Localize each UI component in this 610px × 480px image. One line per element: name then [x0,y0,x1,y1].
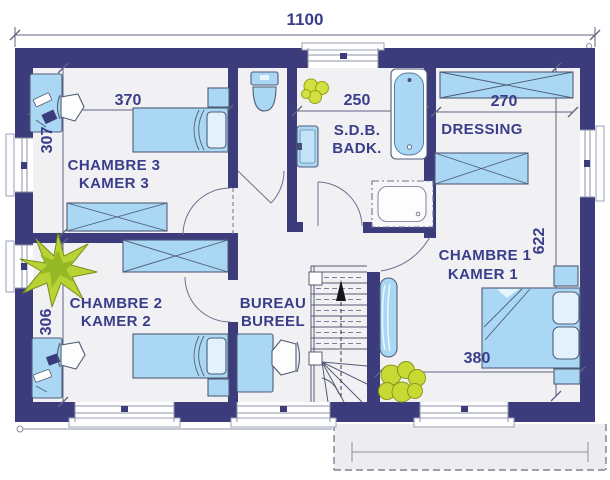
bench-chambre1 [554,369,580,384]
nightstand-chambre3 [208,88,229,107]
floor-plan: 1100 370 307 306 250 270 622 380 CHAMBRE… [0,0,610,480]
desk-bureau [237,334,273,392]
bed-chambre3 [133,108,228,152]
room-label-bathroom-fr: S.D.B. [334,122,381,139]
dim-chambre2-depth: 306 [38,309,55,336]
room-label-chambre1-fr: CHAMBRE 1 [439,247,532,264]
dim-bathroom-width: 250 [344,92,371,109]
window-bottom-chambre1 [414,402,514,427]
window-top [302,43,384,68]
room-label-bathroom-nl: BADK. [332,140,382,157]
floor-plan-drawing: 1100 370 307 306 250 270 622 380 CHAMBRE… [0,0,610,480]
room-label-chambre1-nl: KAMER 1 [448,266,518,283]
wardrobe-chambre2 [123,240,228,272]
room-label-chambre3-nl: KAMER 3 [79,175,149,192]
wardrobe-dressing-mid [435,153,528,184]
window-bottom-bureau [231,402,336,427]
reference-marker-top-right [587,44,592,49]
dim-east-wing-depth: 622 [531,228,548,255]
room-label-dressing: DRESSING [441,121,523,138]
shower [372,181,433,227]
window-left-chambre3 [6,134,33,196]
dim-chambre1-width: 380 [464,350,491,367]
window-left-chambre2 [6,241,33,292]
wardrobe-chambre3 [67,203,167,231]
desk-chambre3 [30,74,62,132]
dim-chambre3-depth: 307 [39,127,56,154]
dim-chambre3-width: 370 [115,92,142,109]
dim-overall-width: 1100 [287,10,324,29]
nightstand-chambre1 [554,266,578,286]
radiator-chambre1 [380,278,397,357]
nightstand-chambre2 [208,379,229,396]
room-label-chambre3-fr: CHAMBRE 3 [68,157,161,174]
bathtub [391,69,427,159]
sink [297,126,318,167]
dim-dressing-width: 270 [491,93,518,110]
room-label-bureau-nl: BUREEL [241,313,305,330]
window-right [580,126,604,201]
desk-chambre2 [32,338,62,398]
ground-floor-outline [334,424,606,470]
bed-chambre1 [482,288,580,368]
room-label-chambre2-fr: CHAMBRE 2 [70,295,163,312]
room-label-chambre2-nl: KAMER 2 [81,313,151,330]
reference-marker-bottom-left [17,426,23,432]
window-bottom-chambre2 [69,402,180,427]
room-label-bureau-fr: BUREAU [240,295,307,312]
bed-chambre2 [133,334,228,378]
